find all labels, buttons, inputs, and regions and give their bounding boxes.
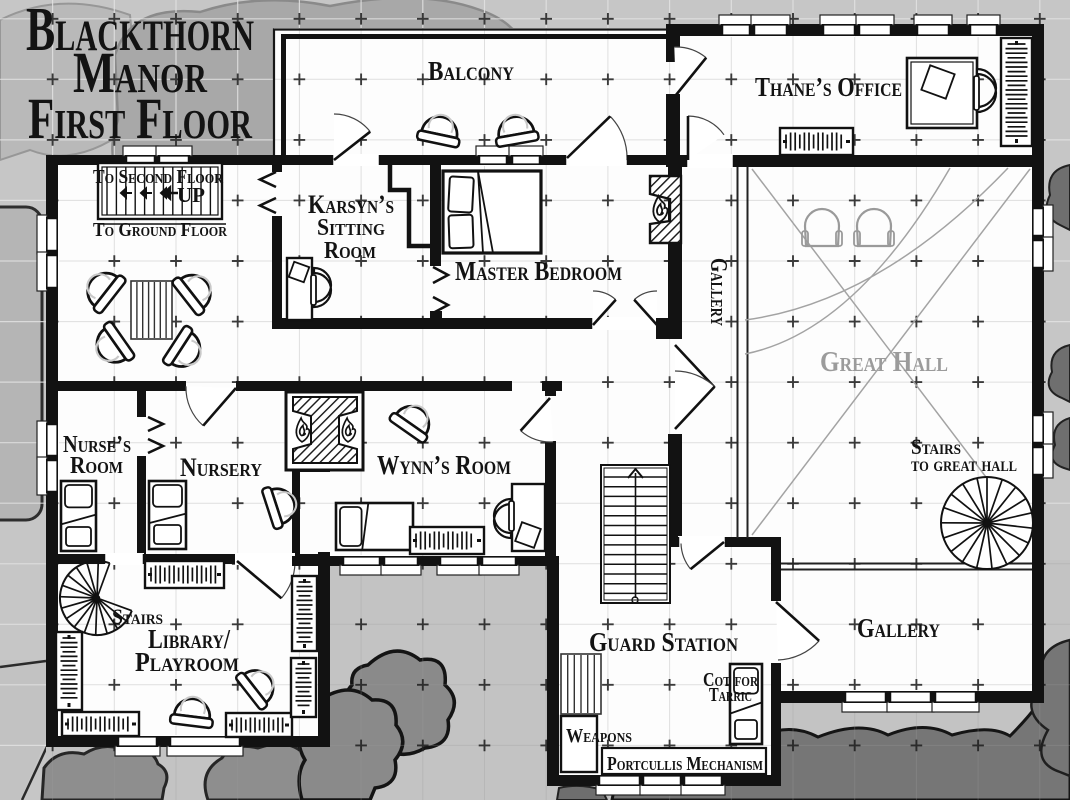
svg-text:Master Bedroom: Master Bedroom (455, 256, 622, 286)
svg-text:Portcullis Mechanism: Portcullis Mechanism (607, 753, 763, 775)
svg-text:Great Hall: Great Hall (820, 346, 948, 378)
svg-text:Balcony: Balcony (428, 56, 514, 86)
svg-text:UP: UP (177, 183, 205, 207)
svg-text:Nursery: Nursery (180, 453, 262, 482)
svg-text:to great hall: to great hall (911, 451, 1017, 476)
svg-text:Wynn’s Room: Wynn’s Room (377, 450, 511, 480)
svg-text:Room: Room (70, 453, 123, 479)
svg-text:Playroom: Playroom (135, 647, 239, 677)
svg-text:Tarric: Tarric (709, 684, 752, 706)
svg-text:Gallery: Gallery (705, 258, 731, 326)
svg-text:First Floor: First Floor (28, 86, 252, 151)
svg-text:To Ground Floor: To Ground Floor (93, 219, 228, 241)
svg-text:Room: Room (324, 238, 376, 264)
svg-text:Gallery: Gallery (857, 613, 940, 643)
svg-text:Thane’s Office: Thane’s Office (755, 72, 902, 102)
svg-text:Guard Station: Guard Station (589, 627, 738, 657)
svg-text:Weapons: Weapons (566, 725, 632, 747)
